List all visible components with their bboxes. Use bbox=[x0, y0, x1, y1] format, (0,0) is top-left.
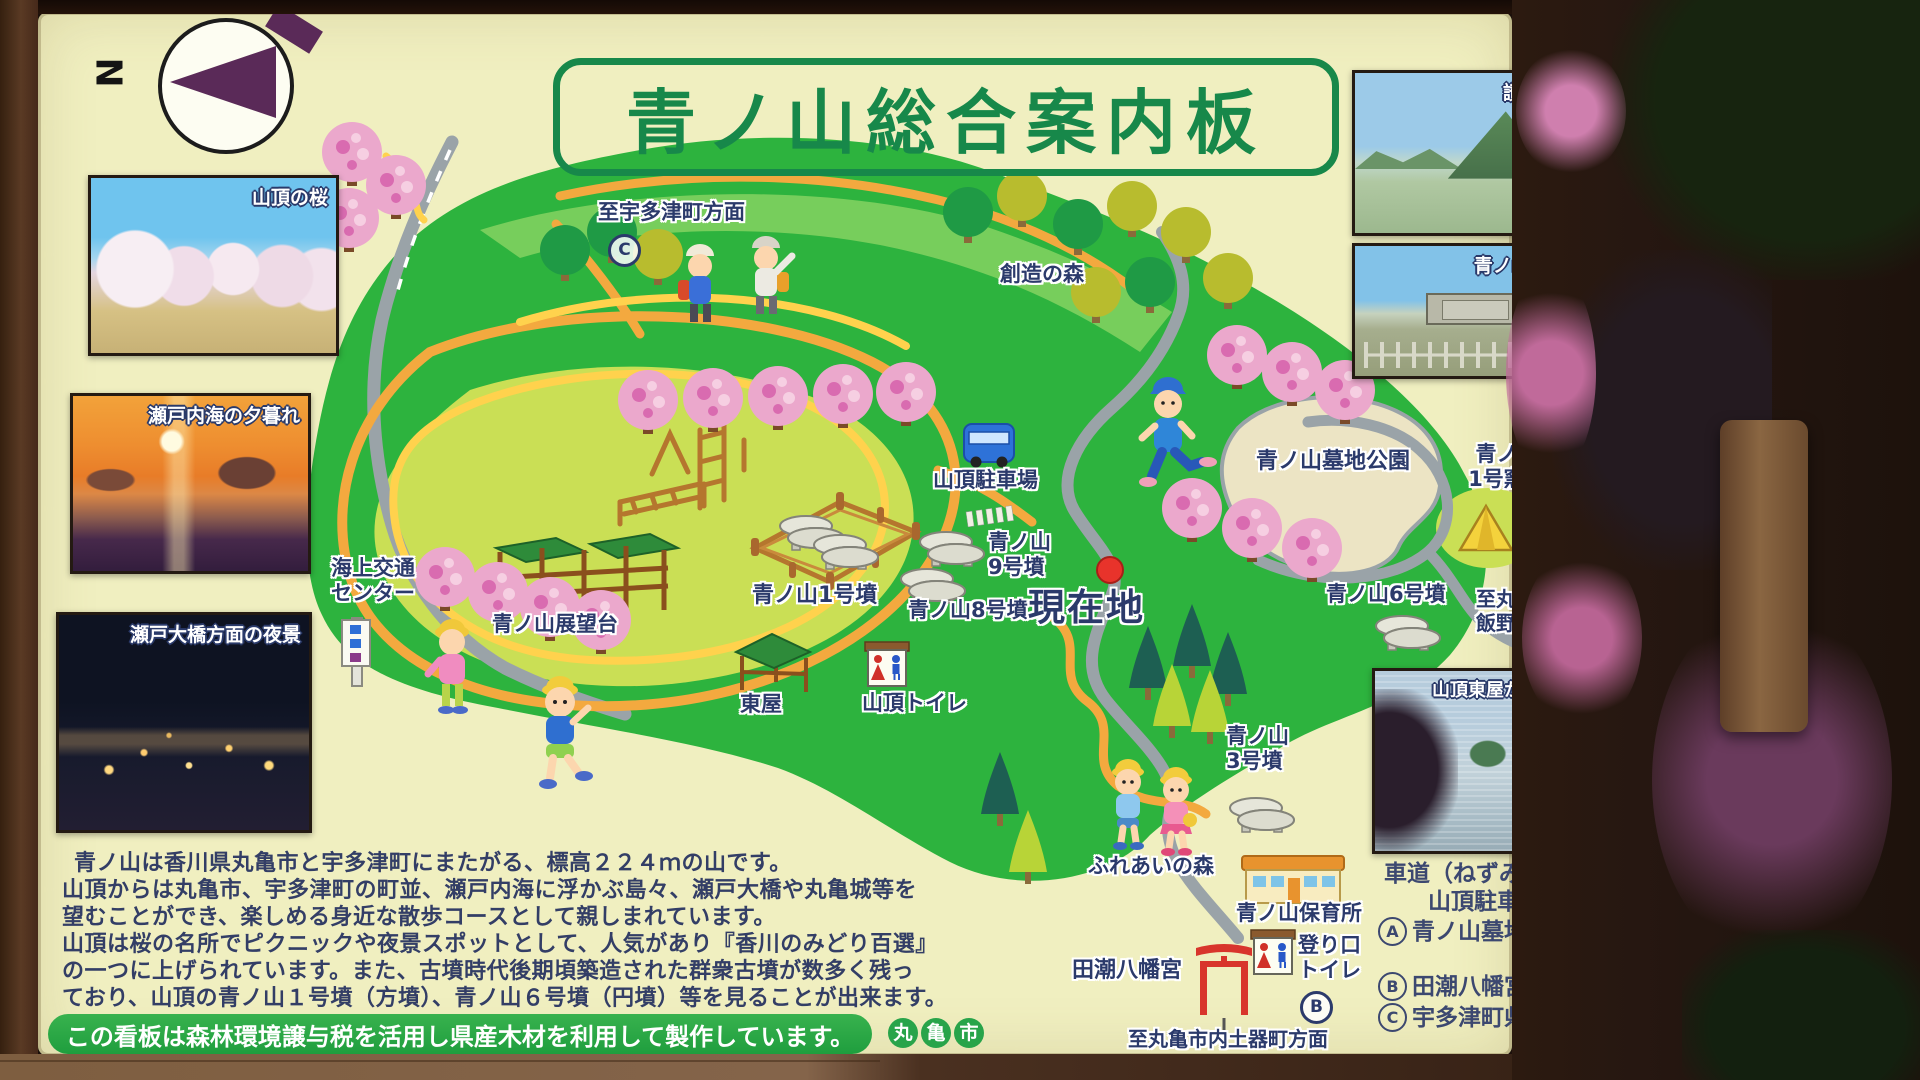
map-label-entrance-toilet: 登り口 トイレ bbox=[1298, 933, 1361, 983]
tomb-stone-shape bbox=[1426, 293, 1524, 326]
entrance-toilet-icon bbox=[1251, 930, 1295, 974]
title-box: 青ノ山総合案内板 bbox=[553, 58, 1339, 176]
map-label-souzou-forest: 創造の森 bbox=[1000, 262, 1084, 287]
wood-frame-left bbox=[0, 0, 38, 1080]
map-label-current-location: 現在地 bbox=[1028, 586, 1145, 630]
photo-night-view: 瀬戸大橋方面の夜景 bbox=[56, 612, 312, 833]
wood-post bbox=[1720, 420, 1808, 732]
ridge-shape bbox=[1355, 147, 1462, 169]
map-label-to-utazu: 至宇多津町方面 bbox=[598, 200, 745, 225]
map-label-tomb9: 青ノ山 9号墳 bbox=[988, 530, 1051, 580]
foliage-shadow bbox=[1612, 0, 1920, 280]
nursery-icon bbox=[1242, 856, 1344, 903]
city-logo-char: 市 bbox=[954, 1018, 984, 1048]
map-label-parking: 山頂駐車場 bbox=[933, 468, 1038, 493]
signal-icon bbox=[342, 618, 370, 686]
lens-blotch bbox=[1522, 548, 1642, 728]
photo-label: 山頂の桜 bbox=[252, 183, 328, 210]
bus-icon bbox=[964, 424, 1014, 468]
map-label-to-doki: 至丸亀市内土器町方面 bbox=[1128, 1028, 1328, 1052]
map-label-gazebo: 東屋 bbox=[740, 692, 782, 717]
photo-seto-sunset: 瀬戸内海の夕暮れ bbox=[70, 393, 311, 574]
city-logo-char: 丸 bbox=[888, 1018, 918, 1048]
route-b-marker: B bbox=[1300, 991, 1333, 1024]
tomb3-stones bbox=[1230, 798, 1294, 832]
map-label-tomb6: 青ノ山6号墳 bbox=[1326, 582, 1446, 607]
map-label-cemetery-park: 青ノ山墓地公園 bbox=[1256, 449, 1410, 475]
map-label-summit-toilet: 山頂トイレ bbox=[862, 691, 967, 716]
summit-toilet-icon bbox=[865, 642, 909, 686]
photo-label: 瀬戸大橋方面の夜景 bbox=[130, 620, 301, 647]
marugame-city-logo: 丸 亀 市 bbox=[888, 1018, 984, 1048]
map-label-observatory: 青ノ山展望台 bbox=[492, 612, 618, 637]
signboard-photo: 青ノ山総合案内板 N 山頂の桜 瀬戸内海の夕暮れ 瀬戸大橋方面の夜景 讃岐富士 … bbox=[0, 0, 1920, 1080]
current-location-dot bbox=[1097, 557, 1123, 583]
branch-silhouette bbox=[1372, 689, 1458, 851]
route-c-marker: C bbox=[608, 234, 641, 267]
route-b-mark: B bbox=[1378, 972, 1407, 1001]
lens-blotch bbox=[1506, 268, 1596, 478]
map-label-nursery: 青ノ山保育所 bbox=[1236, 901, 1362, 926]
map-label-marine-center: 海上交通 センター bbox=[331, 556, 415, 606]
footer-banner-text: この看板は森林環境譲与税を活用し県産木材を利用して製作しています。 bbox=[66, 1017, 854, 1052]
page-title: 青ノ山総合案内板 bbox=[626, 67, 1266, 168]
photo-summit-sakura: 山頂の桜 bbox=[88, 175, 339, 356]
night-view-image bbox=[59, 615, 309, 830]
compass-north-label: N bbox=[91, 57, 132, 87]
map-label-tomb3: 青ノ山 3号墳 bbox=[1226, 724, 1289, 774]
wood-frame-right bbox=[1512, 0, 1920, 1080]
torii-icon bbox=[1196, 944, 1252, 1040]
footer-banner: この看板は森林環境譲与税を活用し県産木材を利用して製作しています。 bbox=[48, 1014, 872, 1054]
map-label-fureai-forest: ふれあいの森 bbox=[1088, 854, 1214, 879]
map-label-tomb8: 青ノ山8号墳 bbox=[908, 598, 1028, 623]
city-logo-char: 亀 bbox=[921, 1018, 951, 1048]
lens-blotch bbox=[1516, 46, 1626, 176]
description-line: ており、山頂の青ノ山１号墳（方墳）、青ノ山６号墳（円墳）等を見ることが出来ます。 bbox=[62, 980, 947, 1012]
map-label-tomb1: 青ノ山1号墳 bbox=[752, 583, 877, 609]
map-label-hachimangu: 田潮八幡宮 bbox=[1072, 958, 1182, 984]
photo-label: 瀬戸内海の夕暮れ bbox=[148, 401, 300, 428]
